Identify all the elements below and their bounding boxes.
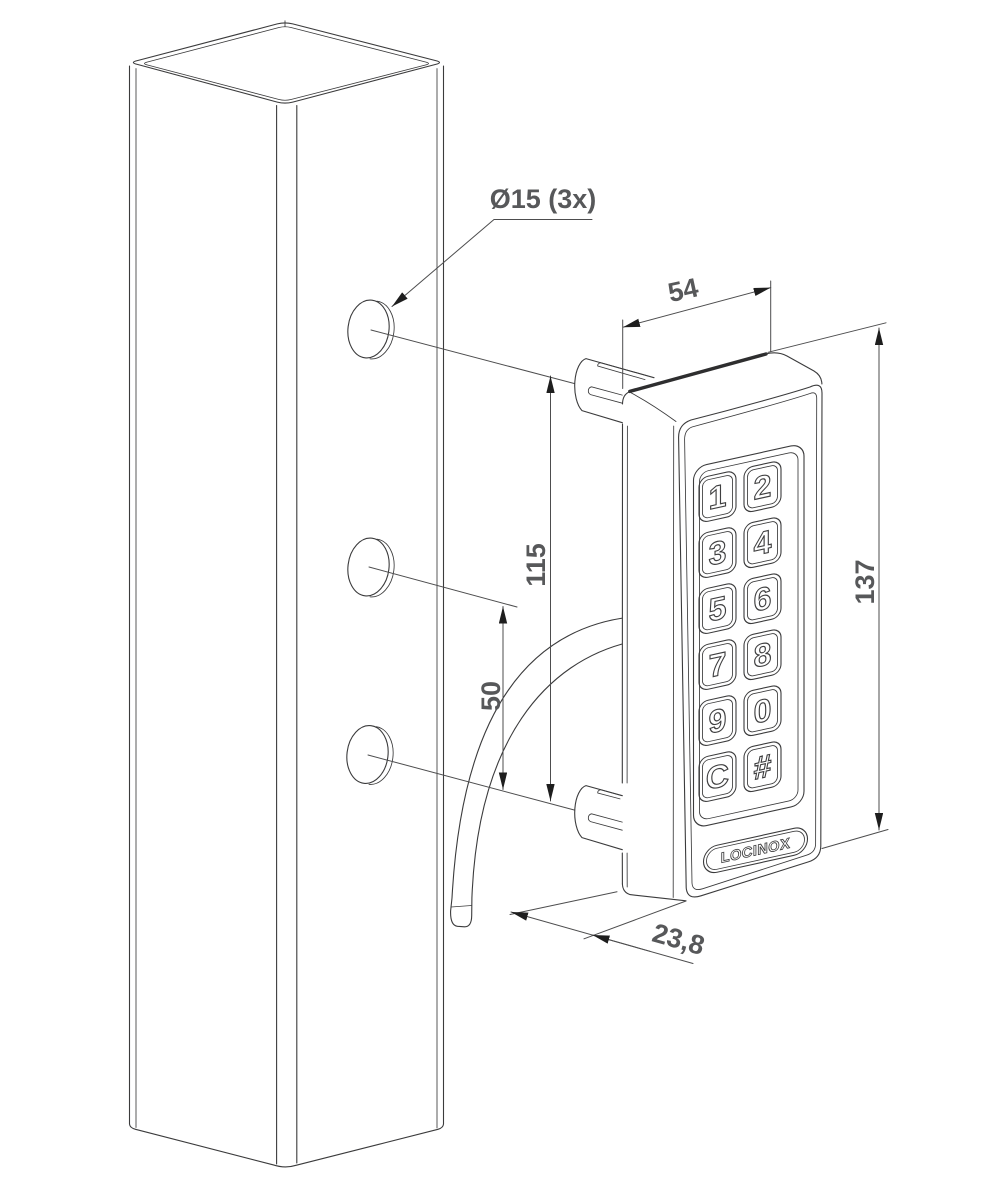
key-label: 1 — [709, 477, 727, 516]
hole-outline — [344, 723, 392, 786]
key-label: 5 — [709, 589, 727, 628]
mounting-hole-bottom — [344, 723, 394, 786]
key-label: 6 — [754, 579, 772, 618]
dimension-hole-spacing-50: 50 — [476, 607, 506, 790]
hole-diameter-leader — [392, 220, 592, 307]
cable-tube — [451, 617, 630, 927]
key-label: 0 — [754, 691, 772, 730]
device-depth-value: 23,8 — [649, 918, 708, 961]
technical-drawing-page: 1 2 3 4 5 — [0, 0, 1000, 1198]
dimension-arrow-line — [593, 935, 651, 951]
extension-line — [822, 830, 888, 849]
post-top-rim-inner — [145, 27, 429, 101]
keypad-front-face-fill — [679, 385, 822, 897]
keypad-front-corner-line — [673, 426, 674, 898]
extension-line — [768, 323, 886, 353]
key-label: C — [706, 756, 729, 797]
keypad-left-face-fill — [622, 392, 686, 902]
hole-diameter-label: Ø15 (3x) — [490, 184, 597, 214]
hole-outline — [345, 298, 393, 361]
keypad-installation-drawing: 1 2 3 4 5 — [0, 0, 1000, 1198]
key-label: 2 — [754, 467, 772, 506]
post-top-rim-outer — [133, 23, 439, 103]
extension-line — [510, 892, 617, 915]
mounting-hole-top — [345, 298, 395, 361]
hole-spacing-lower-value: 50 — [476, 681, 506, 711]
cable-tip-seam — [451, 906, 471, 908]
alignment-line-bottom — [368, 755, 578, 811]
key-label: 9 — [709, 701, 727, 740]
alignment-line-top — [371, 330, 578, 385]
device-height-value: 137 — [850, 559, 880, 604]
key-label: 3 — [709, 533, 727, 572]
cable — [451, 617, 630, 927]
dimension-hole-diameter: Ø15 (3x) — [392, 184, 596, 307]
fixation-pin-bottom — [575, 786, 627, 851]
hole-spacing-outer-value: 115 — [521, 543, 551, 587]
key-label: 8 — [754, 635, 772, 674]
dimension-depth-23-8: 23,8 — [510, 892, 708, 964]
hole-depth-arc — [369, 727, 393, 785]
post-bottom-edges — [130, 1124, 444, 1167]
hole-depth-arc — [370, 301, 394, 359]
key-label: 4 — [754, 523, 772, 562]
key-label: # — [754, 747, 772, 786]
key-label: 7 — [709, 645, 727, 684]
square-post — [130, 21, 444, 1167]
top-width-value: 54 — [665, 272, 701, 308]
dimension-hole-spacing-115: 115 — [521, 376, 551, 801]
keypad-body-fills — [622, 354, 822, 901]
